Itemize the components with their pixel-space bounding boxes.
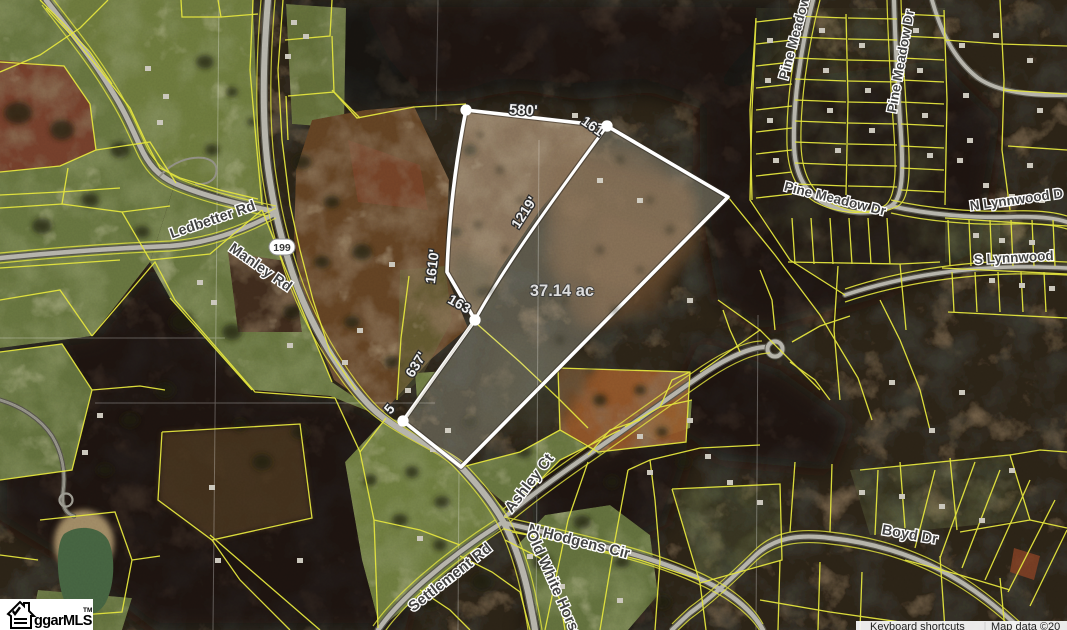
svg-text:Map data ©20: Map data ©20 <box>991 621 1060 630</box>
svg-text:TM: TM <box>83 607 92 614</box>
svg-text:Keyboard shortcuts: Keyboard shortcuts <box>870 621 965 630</box>
svg-text:ggarMLS: ggarMLS <box>34 613 93 629</box>
